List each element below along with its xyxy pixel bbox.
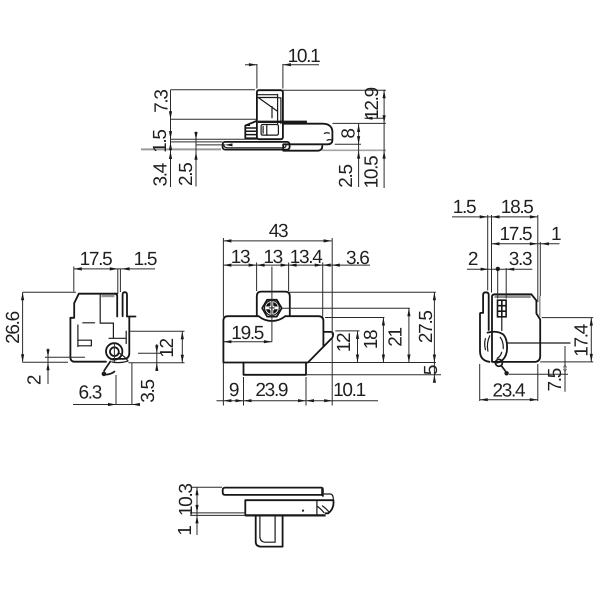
svg-text:18: 18 <box>361 330 382 349</box>
svg-text:2.5: 2.5 <box>176 163 197 186</box>
svg-text:26.6: 26.6 <box>3 311 24 344</box>
svg-text:1.5: 1.5 <box>453 197 476 218</box>
svg-text:18.5: 18.5 <box>501 197 534 218</box>
svg-text:3.3: 3.3 <box>509 249 532 270</box>
svg-text:2: 2 <box>25 375 46 385</box>
svg-text:3.6: 3.6 <box>346 248 369 269</box>
svg-text:8: 8 <box>339 129 360 139</box>
svg-text:13.4: 13.4 <box>290 247 324 268</box>
svg-text:19.5: 19.5 <box>231 323 264 344</box>
svg-text:3.5: 3.5 <box>138 380 159 403</box>
svg-text:1: 1 <box>551 224 561 245</box>
svg-text:12.9: 12.9 <box>362 87 383 120</box>
svg-text:10.1: 10.1 <box>333 380 366 401</box>
svg-text:13: 13 <box>231 247 250 268</box>
svg-text:43: 43 <box>269 221 288 242</box>
svg-text:2: 2 <box>468 249 478 270</box>
svg-text:1.5: 1.5 <box>150 130 171 153</box>
svg-text:7.5: 7.5 <box>545 368 566 391</box>
svg-text:1: 1 <box>175 526 196 536</box>
svg-text:17.4: 17.4 <box>572 323 593 357</box>
svg-text:5: 5 <box>421 365 442 375</box>
svg-text:12: 12 <box>334 333 355 352</box>
svg-text:7.3: 7.3 <box>151 90 172 113</box>
svg-text:6.3: 6.3 <box>79 383 102 404</box>
svg-text:17.5: 17.5 <box>500 224 533 245</box>
svg-text:27.5: 27.5 <box>416 311 437 344</box>
svg-text:21: 21 <box>385 328 406 347</box>
svg-text:9: 9 <box>229 380 239 401</box>
svg-text:23.4: 23.4 <box>493 380 527 401</box>
svg-text:13: 13 <box>263 247 282 268</box>
svg-text:10.1: 10.1 <box>288 46 321 67</box>
svg-text:1.5: 1.5 <box>134 249 157 270</box>
svg-text:17.5: 17.5 <box>80 249 113 270</box>
svg-text:23.9: 23.9 <box>255 380 288 401</box>
svg-text:10.3: 10.3 <box>176 484 197 517</box>
svg-text:10.5: 10.5 <box>362 156 383 189</box>
svg-text:3.4: 3.4 <box>151 162 172 186</box>
svg-text:2.5: 2.5 <box>336 165 357 188</box>
svg-text:12: 12 <box>157 339 178 358</box>
